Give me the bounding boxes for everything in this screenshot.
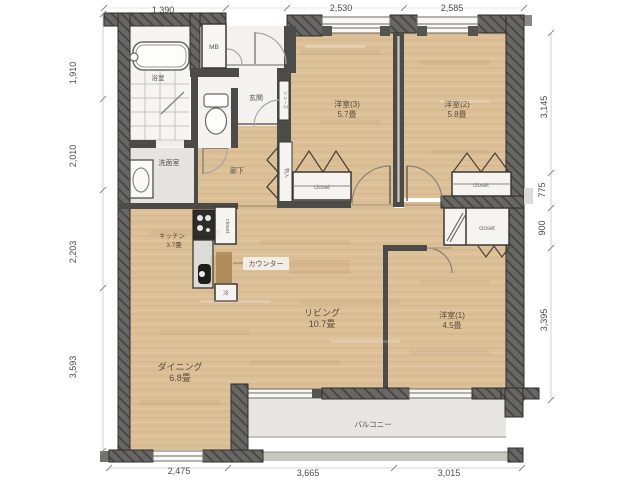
- svg-text:3,145: 3,145: [539, 96, 549, 119]
- svg-text:浴室: 浴室: [152, 73, 166, 82]
- svg-text:カウンター: カウンター: [249, 259, 284, 268]
- svg-text:10.7畳: 10.7畳: [309, 319, 336, 329]
- svg-text:2,475: 2,475: [168, 466, 191, 476]
- svg-text:洋室(1): 洋室(1): [439, 310, 465, 320]
- svg-text:2,585: 2,585: [441, 3, 464, 13]
- svg-text:closet: closet: [473, 183, 489, 189]
- svg-text:4.5畳: 4.5畳: [442, 321, 461, 330]
- svg-text:775: 775: [537, 182, 547, 197]
- svg-text:1,390: 1,390: [152, 5, 175, 15]
- svg-text:closet: closet: [479, 226, 495, 232]
- svg-text:玄関: 玄関: [249, 93, 263, 102]
- svg-text:5.7畳: 5.7畳: [337, 110, 356, 119]
- svg-text:3,395: 3,395: [539, 309, 549, 332]
- svg-text:1,910: 1,910: [68, 62, 78, 85]
- svg-text:MB: MB: [209, 44, 219, 51]
- svg-text:物入: 物入: [283, 168, 290, 178]
- svg-text:冷: 冷: [223, 289, 229, 297]
- svg-text:5.8畳: 5.8畳: [447, 110, 466, 119]
- svg-text:廊下: 廊下: [230, 166, 244, 175]
- svg-text:洗面室: 洗面室: [159, 158, 180, 167]
- svg-text:closet: closet: [314, 185, 330, 191]
- svg-text:リビング: リビング: [304, 307, 340, 318]
- svg-text:2,530: 2,530: [330, 3, 353, 13]
- svg-text:6.8畳: 6.8畳: [169, 373, 191, 383]
- svg-text:バルコニー: バルコニー: [354, 420, 391, 429]
- svg-text:シューズ: シューズ: [282, 91, 289, 109]
- svg-text:3,593: 3,593: [68, 356, 78, 379]
- svg-text:2,010: 2,010: [68, 145, 78, 168]
- svg-text:3.7畳: 3.7畳: [166, 241, 182, 249]
- svg-text:3,015: 3,015: [438, 468, 461, 478]
- svg-text:closet: closet: [224, 219, 230, 234]
- svg-text:3,665: 3,665: [297, 468, 320, 478]
- svg-text:洋室(3): 洋室(3): [334, 99, 360, 109]
- svg-text:900: 900: [537, 220, 547, 235]
- svg-text:2,203: 2,203: [68, 241, 78, 264]
- svg-text:ダイニング: ダイニング: [157, 361, 202, 372]
